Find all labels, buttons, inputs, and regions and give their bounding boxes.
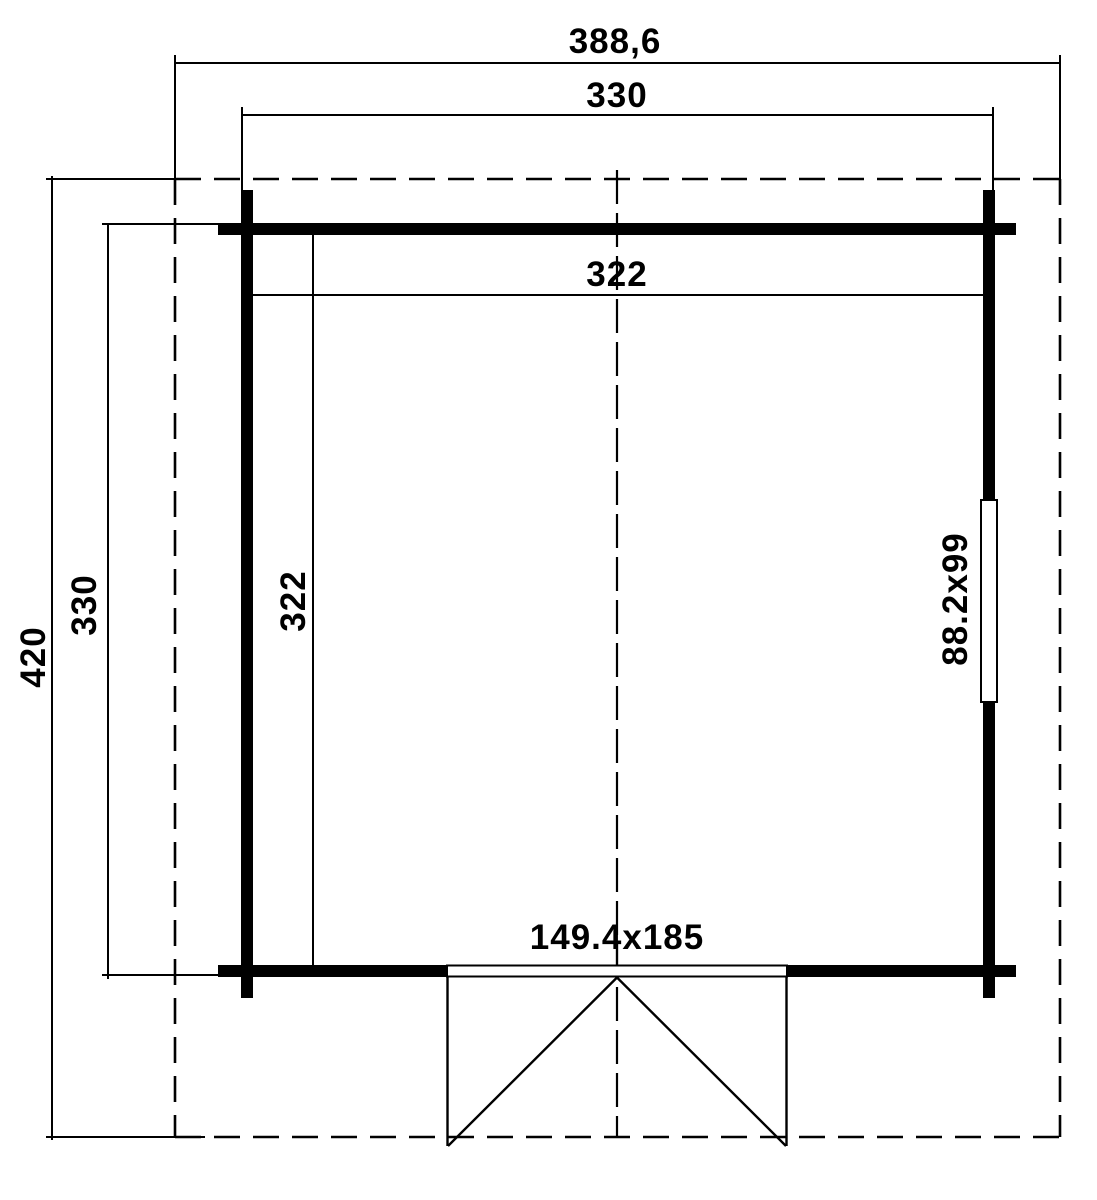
dim-label-overall-width: 330: [467, 74, 767, 118]
wall-bottom-right-of-door: [787, 965, 1016, 977]
wall-right-below-window: [983, 702, 995, 998]
dim-label-inner-width: 322: [467, 253, 767, 297]
floor-plan-drawing: 388,6 330 322 149.4x185 420 330 322 88.2…: [0, 0, 1097, 1200]
door-leaf-right-swing: [617, 978, 786, 1147]
door-threshold: [447, 966, 787, 977]
dim-label-overall-depth: 330: [63, 495, 107, 715]
wall-left: [241, 190, 253, 998]
dim-label-outer-depth: 420: [12, 547, 56, 767]
dim-label-window-size: 88.2x99: [934, 489, 978, 709]
dim-label-door-size: 149.4x185: [467, 916, 767, 960]
wall-top: [218, 223, 1016, 235]
floor-plan-geometry: [0, 0, 1097, 1200]
door-leaf-left-swing: [448, 978, 617, 1147]
window: [981, 500, 997, 702]
dim-label-outer-width: 388,6: [465, 20, 765, 64]
wall-right-above-window: [983, 190, 995, 500]
dim-label-inner-depth: 322: [272, 491, 316, 711]
